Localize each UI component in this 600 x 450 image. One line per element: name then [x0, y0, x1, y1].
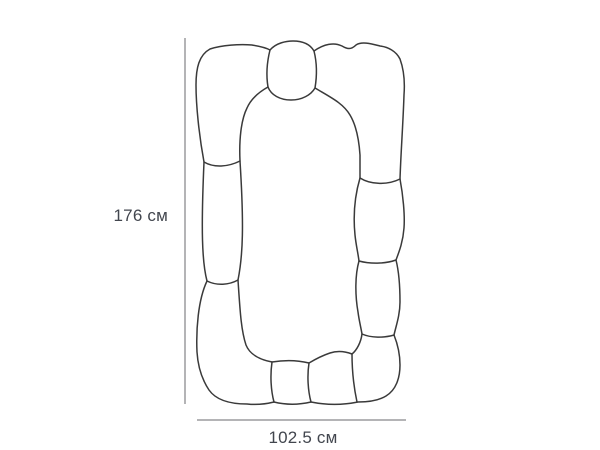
- width-label: 102.5 см: [233, 427, 373, 449]
- stone-divider: [352, 354, 357, 402]
- stone-divider: [204, 161, 240, 166]
- stone-divider: [314, 51, 316, 88]
- stone-divider: [267, 50, 270, 87]
- stone-divider: [360, 178, 400, 183]
- frame-inner-outline: [238, 87, 362, 363]
- frame-outer-outline: [196, 41, 404, 404]
- height-label: 176 см: [58, 205, 168, 227]
- product-dimensions-diagram: 176 см 102.5 см: [0, 0, 600, 450]
- stone-divider: [362, 334, 394, 337]
- stone-divider: [271, 362, 274, 402]
- stone-divider: [359, 260, 396, 263]
- stone-divider: [308, 363, 311, 402]
- stone-divider: [207, 280, 238, 284]
- stone-frame-group: [196, 41, 404, 404]
